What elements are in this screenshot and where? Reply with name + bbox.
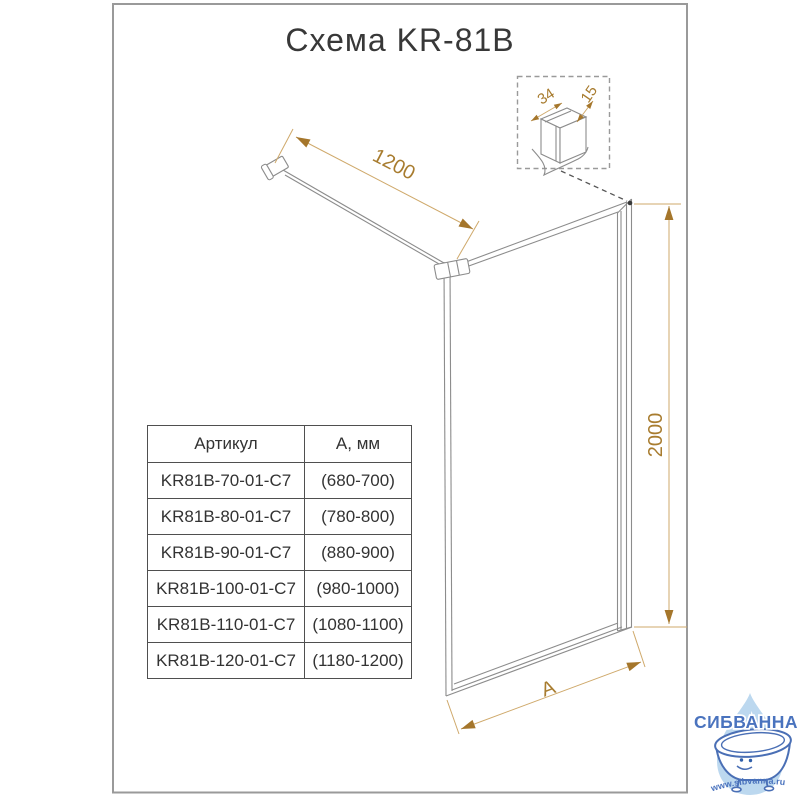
brand-watermark: СИБВАННА www.sibvanna.ru xyxy=(688,686,800,800)
table-row: KR81B-100-01-C7 (980-1000) xyxy=(148,571,412,607)
table-row: KR81B-120-01-C7 (1180-1200) xyxy=(148,643,412,679)
table-row: KR81B-70-01-C7 (680-700) xyxy=(148,463,412,499)
schematic-page: Схема KR-81B xyxy=(0,0,800,800)
article-cell: KR81B-120-01-C7 xyxy=(148,643,305,679)
brand-name: СИБВАННА xyxy=(694,712,798,732)
dim-label-a: A xyxy=(538,676,559,702)
profile-detail-callout: 34 15 xyxy=(518,77,633,206)
schematic-drawing: 1200 2000 A xyxy=(0,0,800,800)
size-cell: (680-700) xyxy=(305,463,412,499)
article-cell: KR81B-80-01-C7 xyxy=(148,499,305,535)
header-size: А, мм xyxy=(305,426,412,463)
header-article: Артикул xyxy=(148,426,305,463)
dimension-height: 2000 xyxy=(634,204,687,627)
table-row: KR81B-80-01-C7 (780-800) xyxy=(148,499,412,535)
glass-clamp xyxy=(434,258,470,279)
size-cell: (980-1000) xyxy=(305,571,412,607)
wall-bracket xyxy=(261,155,290,181)
dimension-bar-length: 1200 xyxy=(275,129,479,259)
glass-panel xyxy=(444,199,632,696)
article-cell: KR81B-110-01-C7 xyxy=(148,607,305,643)
dimension-width: A xyxy=(447,631,645,734)
dim-label-15: 15 xyxy=(578,83,601,106)
table-row: KR81B-90-01-C7 (880-900) xyxy=(148,535,412,571)
article-cell: KR81B-100-01-C7 xyxy=(148,571,305,607)
article-cell: KR81B-70-01-C7 xyxy=(148,463,305,499)
article-cell: KR81B-90-01-C7 xyxy=(148,535,305,571)
size-cell: (1080-1100) xyxy=(305,607,412,643)
size-cell: (780-800) xyxy=(305,499,412,535)
detail-leader xyxy=(561,171,627,201)
size-table: Артикул А, мм KR81B-70-01-C7 (680-700) K… xyxy=(147,425,412,679)
dim-label-2000: 2000 xyxy=(645,413,667,458)
size-cell: (880-900) xyxy=(305,535,412,571)
size-cell: (1180-1200) xyxy=(305,643,412,679)
table-header-row: Артикул А, мм xyxy=(148,426,412,463)
detail-dim-15: 15 xyxy=(577,83,601,122)
table-row: KR81B-110-01-C7 (1080-1100) xyxy=(148,607,412,643)
detail-leader-dot xyxy=(628,201,633,206)
